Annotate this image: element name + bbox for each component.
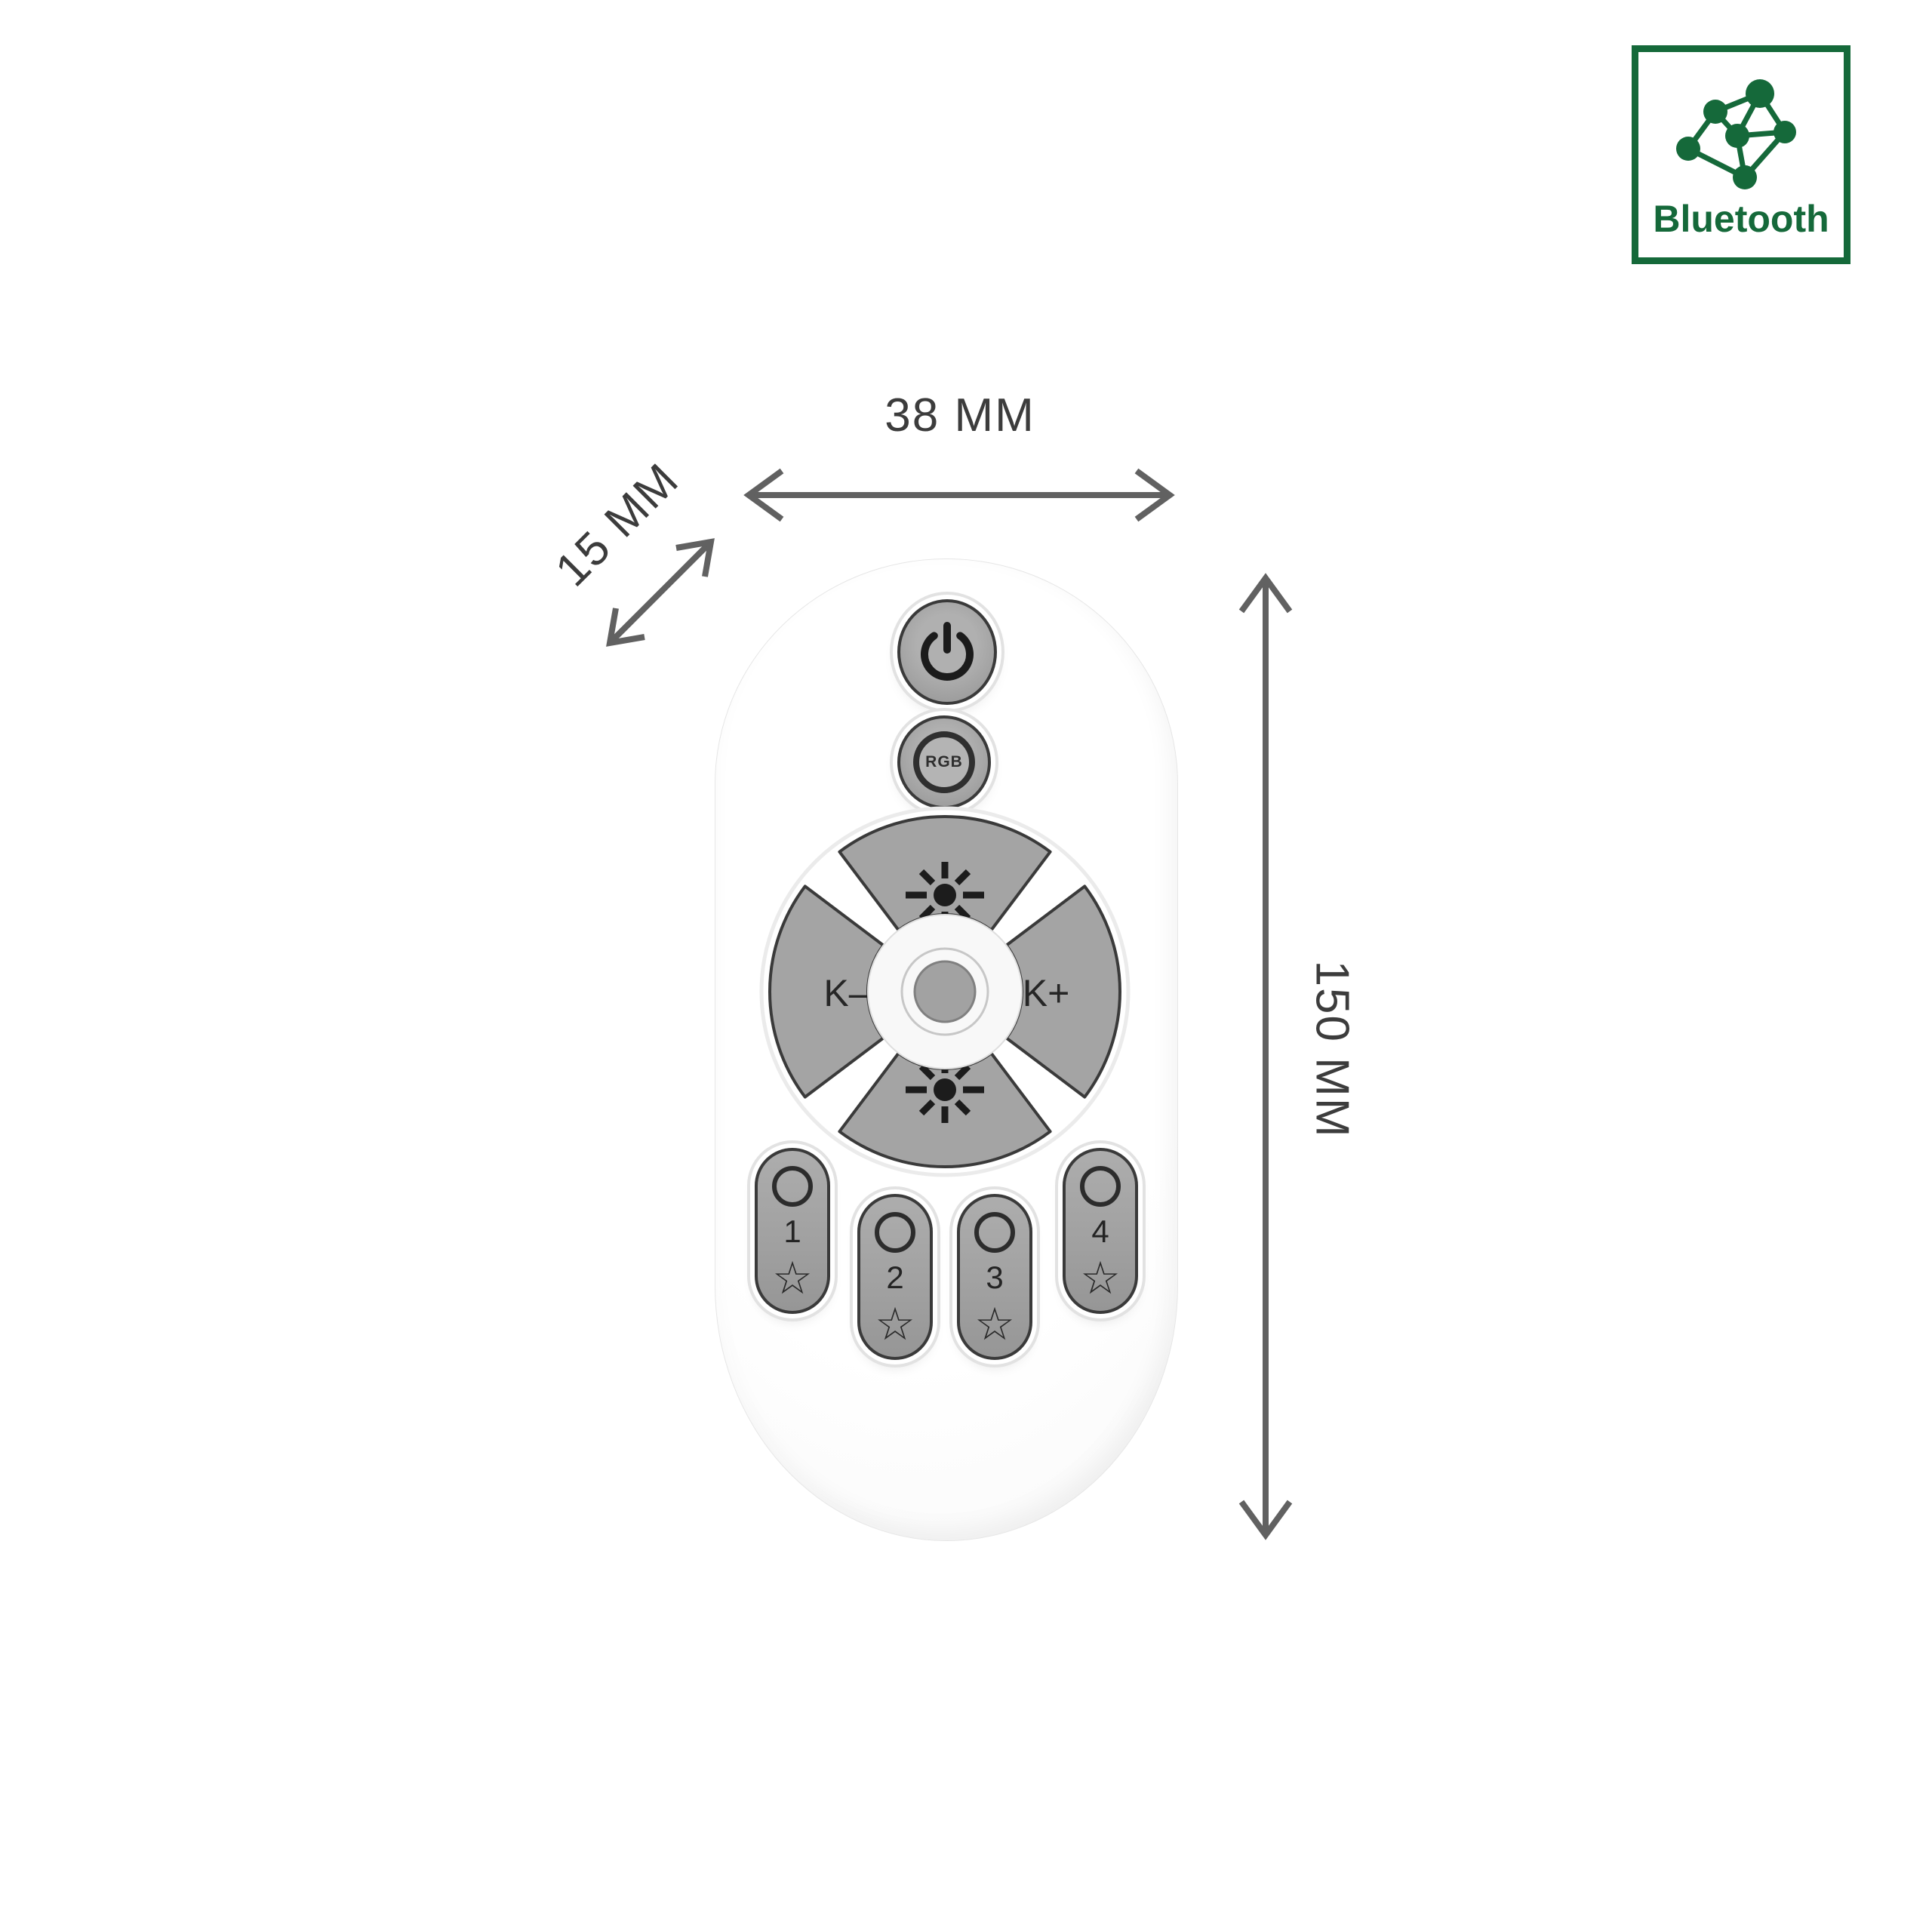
ring-icon xyxy=(1080,1166,1121,1207)
k-minus-label: K– xyxy=(823,972,869,1014)
rgb-button-label: RGB xyxy=(925,753,963,771)
product-dimension-diagram: Bluetooth 38 MM 15 MM 150 MM RGB xyxy=(0,0,1932,1932)
height-dimension-label: 150 MM xyxy=(1306,929,1359,1171)
star-icon: ☆ xyxy=(772,1257,813,1300)
star-icon: ☆ xyxy=(875,1303,915,1346)
channel-number: 4 xyxy=(1091,1216,1109,1247)
channel-number: 3 xyxy=(986,1262,1003,1294)
power-icon xyxy=(913,618,981,686)
channel-number: 1 xyxy=(783,1216,801,1247)
mesh-network-icon xyxy=(1646,67,1836,195)
rgb-button: RGB xyxy=(897,715,991,809)
bluetooth-badge: Bluetooth xyxy=(1632,45,1850,264)
ring-icon xyxy=(875,1212,915,1253)
dpad-center-dot xyxy=(915,961,975,1022)
channel-button-3: 3 ☆ xyxy=(957,1194,1032,1360)
star-icon: ☆ xyxy=(1080,1257,1121,1300)
channel-number: 2 xyxy=(886,1262,903,1294)
width-dimension-label: 38 MM xyxy=(809,389,1111,442)
ring-icon xyxy=(772,1166,813,1207)
ring-icon xyxy=(974,1212,1015,1253)
k-plus-label: K+ xyxy=(1023,972,1070,1014)
channel-button-2: 2 ☆ xyxy=(857,1194,933,1360)
rgb-button-inner-ring: RGB xyxy=(913,731,975,793)
dpad: K– K+ xyxy=(756,803,1134,1180)
star-icon: ☆ xyxy=(974,1303,1015,1346)
channel-button-1: 1 ☆ xyxy=(755,1148,830,1314)
depth-dimension-arrow xyxy=(596,528,724,657)
width-dimension-arrow xyxy=(738,460,1180,530)
power-button xyxy=(897,599,997,705)
bluetooth-label: Bluetooth xyxy=(1653,197,1829,241)
channel-button-4: 4 ☆ xyxy=(1063,1148,1138,1314)
height-dimension-arrow xyxy=(1232,568,1300,1546)
